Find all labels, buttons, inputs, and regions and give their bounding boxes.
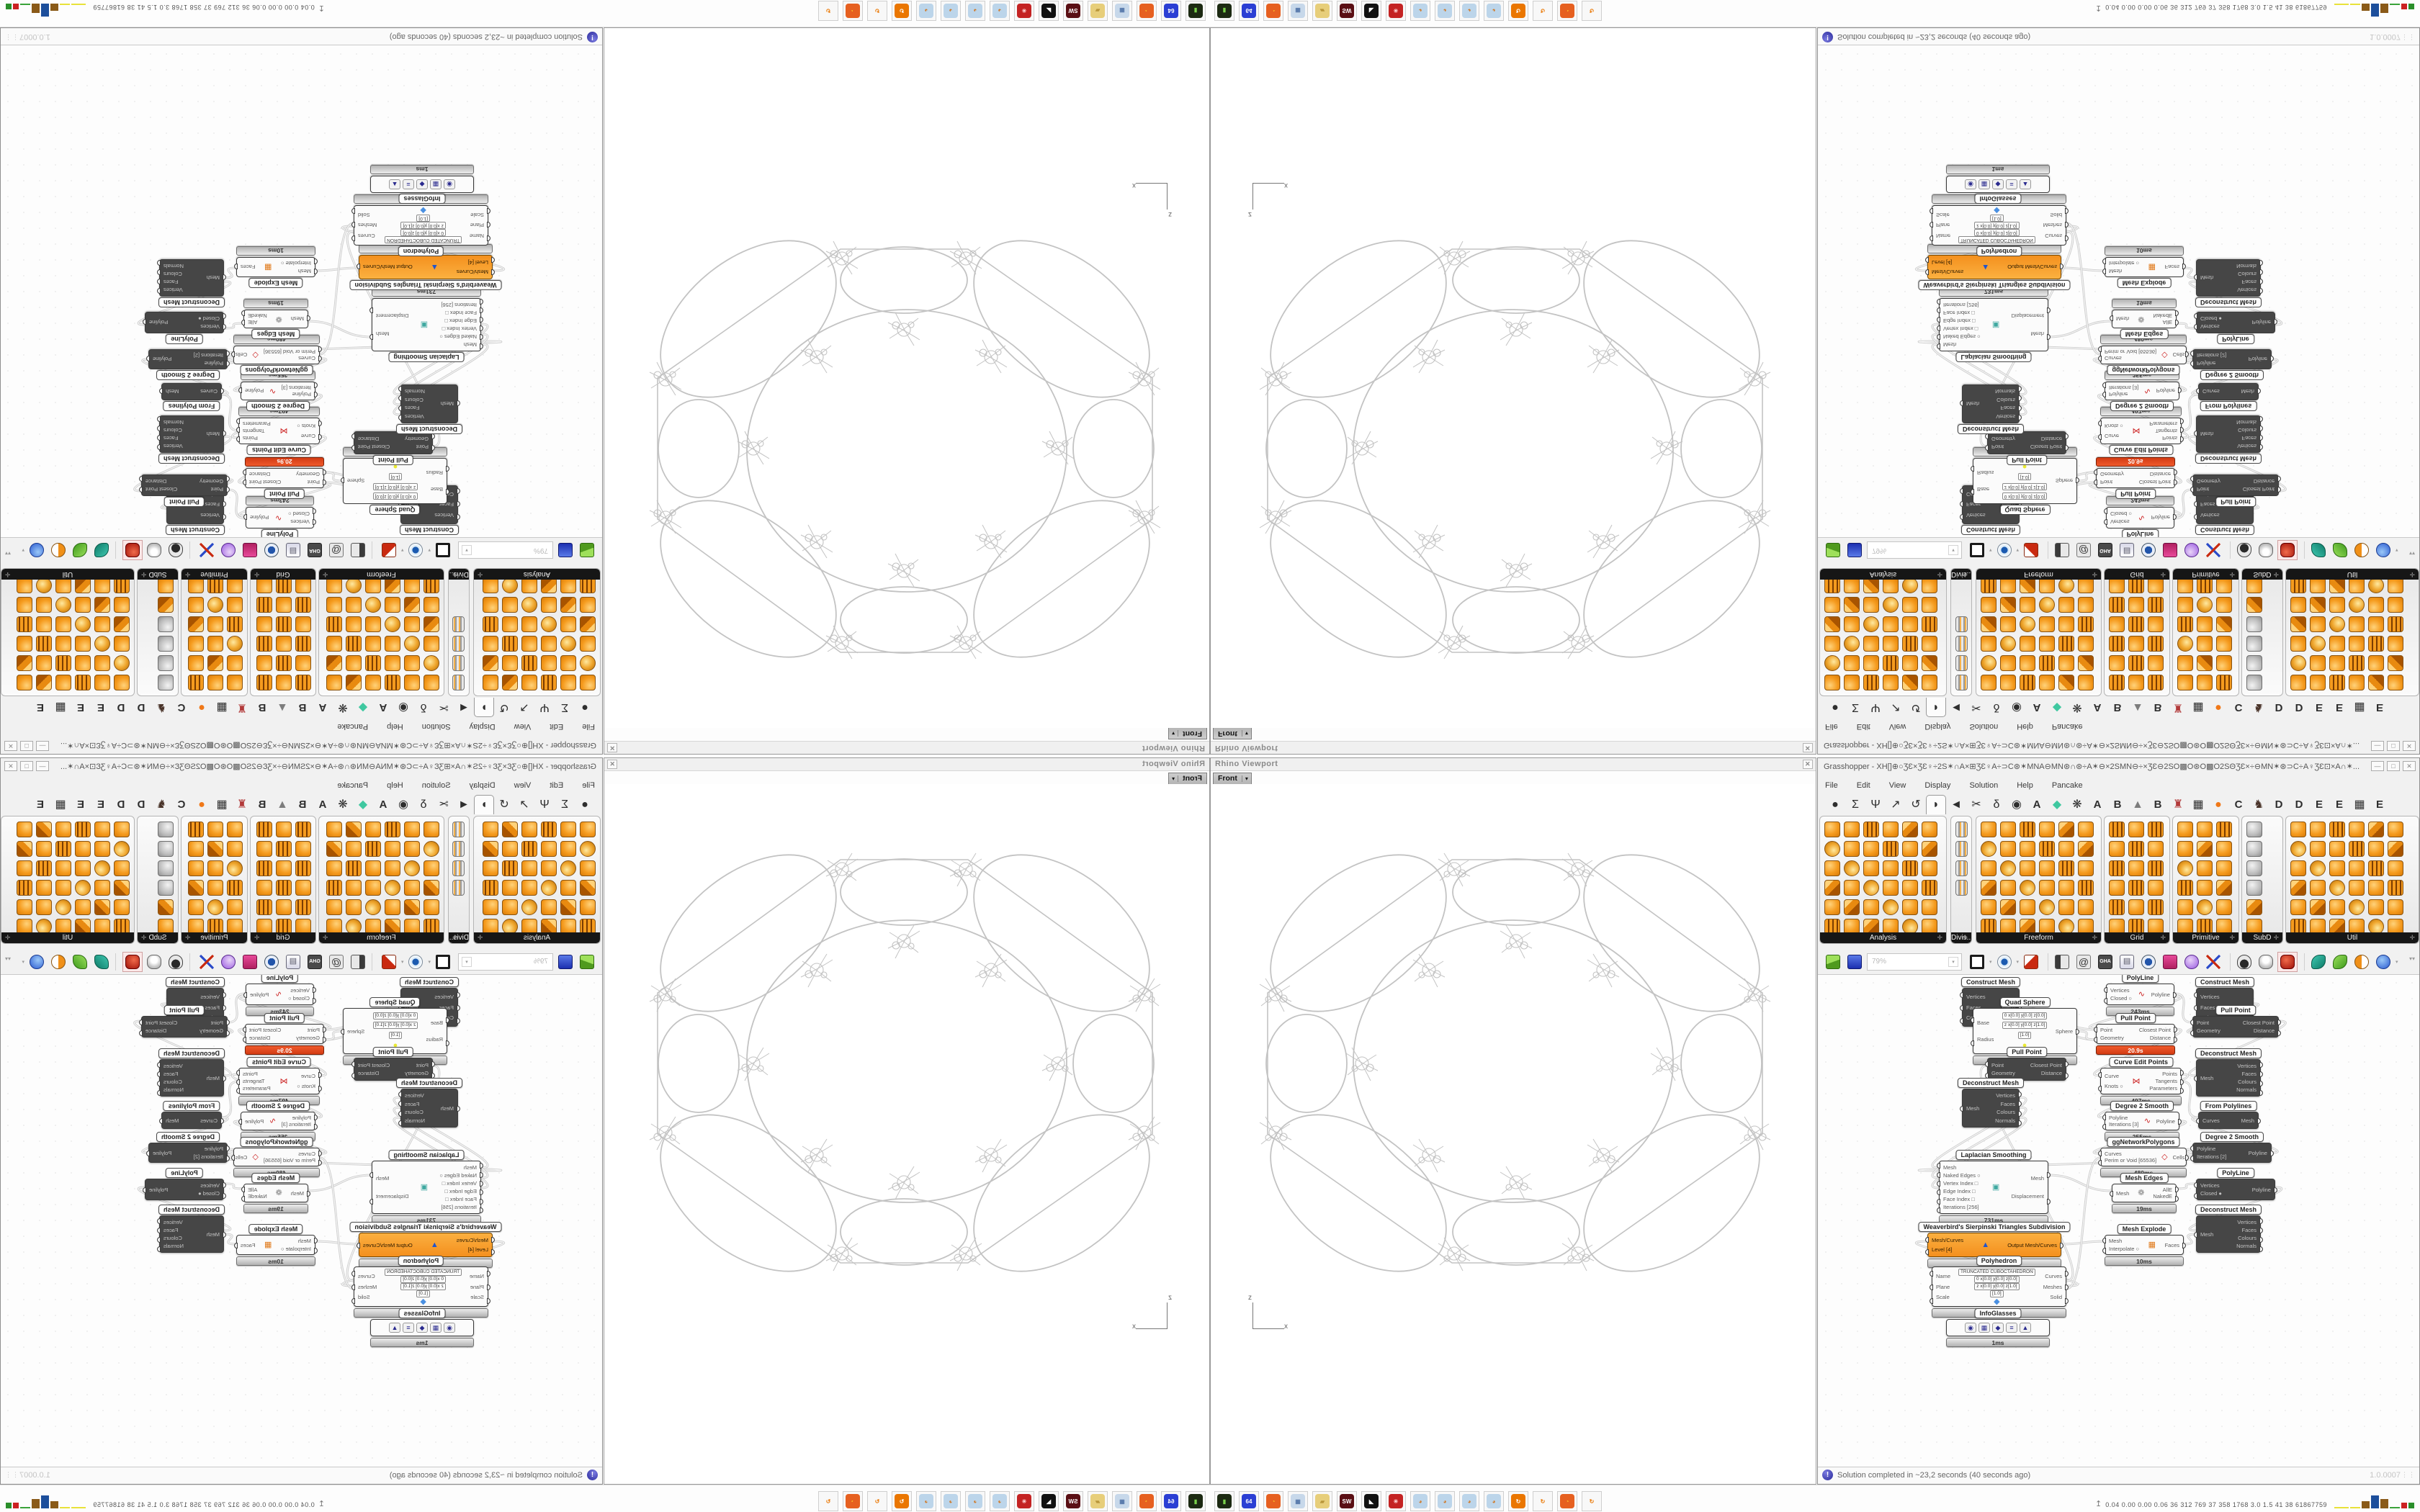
component-icon[interactable] <box>2388 617 2403 633</box>
input-port[interactable]: Naked Edges ○ <box>439 333 477 340</box>
input-port[interactable]: Point <box>1991 1062 2015 1068</box>
component-icon[interactable] <box>2128 675 2144 691</box>
category-tab-24[interactable]: E <box>2309 796 2329 814</box>
input-port[interactable]: Interpolate ○ <box>281 1246 311 1252</box>
output-jack[interactable] <box>341 1029 344 1035</box>
component-icon[interactable] <box>385 675 401 691</box>
component-icon[interactable] <box>189 841 205 857</box>
component-icon[interactable] <box>346 880 362 896</box>
infoglasses-button[interactable]: ▲ <box>2020 179 2031 189</box>
floppy-64-icon[interactable]: 64 <box>1239 1491 1259 1511</box>
output-port[interactable]: Normals <box>2236 263 2257 269</box>
output-port[interactable]: Cells <box>236 352 248 359</box>
output-port[interactable]: Normals <box>2236 1243 2257 1249</box>
sphere-orange-button[interactable] <box>49 953 68 971</box>
input-port[interactable]: Polyline <box>2197 360 2226 366</box>
input-port[interactable]: Mesh <box>291 1190 304 1197</box>
component-icon[interactable] <box>37 675 53 691</box>
component-icon[interactable] <box>2020 578 2035 594</box>
input-port[interactable]: Curves <box>2202 389 2220 395</box>
component-icon[interactable] <box>2078 675 2094 691</box>
input-jack[interactable] <box>1960 488 1963 494</box>
component-icon[interactable] <box>2310 880 2326 896</box>
component-icon[interactable] <box>2000 656 2016 672</box>
component-icon[interactable] <box>2388 656 2403 672</box>
input-port[interactable]: Curves <box>264 1151 315 1157</box>
output-port[interactable]: Solid <box>358 1294 377 1300</box>
component-icon[interactable] <box>208 899 224 915</box>
output-port[interactable]: Polyline <box>2249 1150 2267 1156</box>
output-port[interactable]: Closest Point <box>358 444 390 450</box>
leaf-teal-button[interactable] <box>92 541 111 559</box>
input-port[interactable]: Curves <box>200 389 218 395</box>
obscure-viewer-button[interactable] <box>2053 953 2071 971</box>
viewport-tab-front[interactable]: Front ▾ <box>1168 773 1207 785</box>
node-canvas[interactable]: Construct MeshVerticesFacesColoursMeshQu… <box>1818 45 2419 538</box>
value-chip[interactable]: TRUNCATED CUBOCTAHEDRON <box>385 1269 462 1276</box>
component-icon[interactable] <box>37 860 53 876</box>
component-icon[interactable] <box>277 860 292 876</box>
input-jack[interactable] <box>2102 383 2106 389</box>
input-jack[interactable] <box>2190 351 2194 356</box>
node-body[interactable]: PolylineIterations [3]∿Polyline <box>241 382 315 400</box>
category-tab-17[interactable]: ♜ <box>2168 796 2188 814</box>
category-tab-27[interactable]: E <box>30 796 50 814</box>
component-icon[interactable] <box>542 675 557 691</box>
node-body[interactable]: CurvesPerim or Void [65536]◇Cells <box>2100 1148 2187 1166</box>
component-icon[interactable] <box>2197 822 2213 837</box>
obscure-viewer-button[interactable] <box>2053 541 2071 559</box>
output-port[interactable]: Colours <box>1995 397 2015 403</box>
component-icon[interactable] <box>2128 880 2144 896</box>
input-port[interactable]: Mesh <box>207 431 220 438</box>
output-port[interactable]: Colours <box>2236 1079 2257 1085</box>
input-jack[interactable] <box>491 1249 495 1255</box>
component-icon[interactable] <box>366 636 382 652</box>
input-port[interactable]: Naked Edges ○ <box>439 1172 477 1179</box>
input-jack[interactable] <box>2102 1115 2106 1120</box>
value-chip[interactable]: z x[0.0] y[0.0] z[1.0] <box>1974 222 2019 229</box>
input-jack[interactable] <box>2194 1076 2197 1081</box>
node-body[interactable]: MeshInterpolate ○▦Faces <box>2105 257 2184 277</box>
output-jack[interactable] <box>157 426 161 432</box>
component-icon[interactable] <box>1844 598 1860 613</box>
component-icon[interactable] <box>2039 578 2055 594</box>
category-tab-16[interactable]: B <box>2148 699 2168 716</box>
save-file-button[interactable] <box>1845 953 1864 971</box>
maximize-button[interactable]: □ <box>2387 741 2400 751</box>
component-icon[interactable] <box>2329 675 2345 691</box>
component-icon[interactable] <box>2109 841 2125 857</box>
leaf-teal-button[interactable] <box>2309 541 2328 559</box>
component-icon[interactable] <box>2197 636 2213 652</box>
component-icon[interactable] <box>542 880 557 896</box>
category-tab-17[interactable]: ♜ <box>2168 699 2188 716</box>
component-icon[interactable] <box>424 617 440 633</box>
component-icon[interactable] <box>208 598 224 613</box>
menu-item-file[interactable]: File <box>1825 781 1838 790</box>
node-body[interactable]: MeshVerticesFacesColoursNormals <box>159 259 224 297</box>
component-icon[interactable] <box>483 598 499 613</box>
component-icon[interactable] <box>158 598 174 613</box>
output-port[interactable]: Normals <box>405 388 425 395</box>
viewport-close-icon[interactable]: ✕ <box>1803 760 1813 769</box>
component-icon[interactable] <box>56 598 72 613</box>
component-icon[interactable] <box>503 598 519 613</box>
category-tab-23[interactable]: D <box>2289 699 2309 716</box>
infoglasses-button[interactable]: ≡ <box>403 1323 414 1333</box>
output-port[interactable]: Normals <box>1995 1117 2015 1124</box>
remote-at-button[interactable]: @ <box>327 541 346 559</box>
input-jack[interactable] <box>2098 356 2102 362</box>
component-icon[interactable] <box>2000 822 2016 837</box>
component-icon[interactable] <box>2216 656 2232 672</box>
output-port[interactable]: Output Mesh/Curves <box>363 264 413 271</box>
palette-footer[interactable]: SubD✛ <box>2242 569 2282 580</box>
node-infoglasses[interactable]: InfoGlasses◉▦◆≡▲1ms <box>370 165 474 193</box>
component-icon[interactable] <box>453 841 465 857</box>
component-icon[interactable] <box>1883 675 1899 691</box>
output-port[interactable]: Faces <box>1995 405 2015 411</box>
output-jack[interactable] <box>351 222 355 228</box>
category-tab-14[interactable]: B <box>292 699 313 716</box>
component-icon[interactable] <box>327 860 343 876</box>
category-tab-2[interactable]: Ψ <box>1865 699 1886 716</box>
component-icon[interactable] <box>56 860 72 876</box>
input-jack[interactable] <box>2094 469 2097 475</box>
output-port[interactable]: Distance <box>249 471 281 477</box>
component-icon[interactable] <box>327 578 343 594</box>
component-icon[interactable] <box>2058 656 2074 672</box>
component-icon[interactable] <box>2310 899 2326 915</box>
component-icon[interactable] <box>2197 841 2213 857</box>
input-jack[interactable] <box>2094 1037 2097 1043</box>
value-chip[interactable]: TRUNCATED CUBOCTAHEDRON <box>385 236 462 243</box>
component-icon[interactable] <box>2197 617 2213 633</box>
input-jack[interactable] <box>1930 208 1933 214</box>
grasshopper-titlebar[interactable]: Grasshopper - XH[]⊕○ƷƐ×ƷƐ♀÷2S✶∩A×⊞ƷƐ♀A÷⊃… <box>1 758 602 775</box>
input-port[interactable]: Polyline <box>194 1146 223 1152</box>
component-icon[interactable] <box>208 617 224 633</box>
component-icon[interactable] <box>327 841 343 857</box>
node-polyline-top[interactable]: PolyLineVerticesClosed ○∿Polyline243ms <box>246 496 314 528</box>
component-icon[interactable] <box>2368 675 2384 691</box>
node-body[interactable]: MeshVerticesFacesColoursNormals <box>1962 1089 2020 1128</box>
output-port[interactable]: Faces <box>163 435 184 441</box>
node-ggnetwork-polygons[interactable]: ggNetworkPolygonsCurvesPerim or Void [65… <box>2100 335 2187 364</box>
infoglasses-button[interactable]: ≡ <box>2006 179 2017 189</box>
input-jack[interactable] <box>2194 501 2197 507</box>
node-deconstruct-mesh-r2[interactable]: Deconstruct MeshMeshVerticesFacesColours… <box>159 1215 224 1253</box>
input-jack[interactable] <box>226 1020 230 1025</box>
component-icon[interactable] <box>385 860 401 876</box>
node-degree-2-smooth-r[interactable]: Degree 2 SmoothPolylineIterations [2]Pol… <box>2192 349 2272 369</box>
component-icon[interactable] <box>2020 880 2035 896</box>
input-port[interactable]: Vertices <box>1966 994 1986 1000</box>
output-port[interactable]: Faces <box>163 279 184 285</box>
category-tab-6[interactable]: ◄ <box>1946 796 1966 814</box>
component-icon[interactable] <box>115 578 130 594</box>
input-jack[interactable] <box>318 1151 322 1156</box>
minimize-button[interactable]: — <box>36 741 49 751</box>
category-tab-13[interactable]: A <box>2087 699 2107 716</box>
menu-item-pancake[interactable]: Pancake <box>337 781 368 790</box>
component-icon[interactable] <box>2148 675 2164 691</box>
component-icon[interactable] <box>228 636 243 652</box>
input-port[interactable]: Vertices <box>2200 512 2220 518</box>
menu-item-display[interactable]: Display <box>1924 781 1950 790</box>
component-icon[interactable] <box>2078 656 2094 672</box>
output-jack[interactable] <box>157 261 161 266</box>
component-icon[interactable] <box>453 636 465 652</box>
component-icon[interactable] <box>1981 675 1996 691</box>
component-icon[interactable] <box>2020 656 2035 672</box>
node-body[interactable]: CurvesMesh <box>161 1112 222 1129</box>
component-icon[interactable] <box>2039 822 2055 837</box>
node-degree-2-smooth-l[interactable]: Degree 2 SmoothPolylineIterations [3]∿Po… <box>2105 371 2179 400</box>
gha-assembly-button[interactable]: GHA <box>2096 953 2115 971</box>
input-port[interactable]: Interpolate ○ <box>281 260 311 266</box>
component-icon[interactable] <box>56 675 72 691</box>
output-port[interactable]: Polyline <box>2249 356 2267 363</box>
category-tab-17[interactable]: ♜ <box>232 699 252 716</box>
input-jack[interactable] <box>2104 998 2107 1004</box>
output-port[interactable]: Solid <box>2043 1294 2062 1300</box>
component-icon[interactable] <box>228 880 243 896</box>
component-icon[interactable] <box>522 822 538 837</box>
infoglasses-button[interactable]: ≡ <box>403 179 414 189</box>
component-icon[interactable] <box>522 899 538 915</box>
input-jack[interactable] <box>1930 235 1933 241</box>
menu-item-help[interactable]: Help <box>387 722 403 731</box>
output-port[interactable]: Polyline <box>2252 320 2271 326</box>
input-port[interactable]: Vertices <box>198 1182 220 1189</box>
value-chip[interactable]: [1.0] <box>2018 473 2032 480</box>
input-port[interactable]: Geometry <box>1991 436 2015 442</box>
sketch-pen-button[interactable] <box>380 541 398 559</box>
toolbar-caret-icon[interactable]: ▾ <box>401 959 404 965</box>
input-jack[interactable] <box>1960 400 1963 406</box>
category-tab-15[interactable]: ▲ <box>272 796 292 814</box>
value-chip[interactable]: 0 x[0.0] y[0.0] z[0.0] <box>400 229 446 236</box>
component-icon[interactable] <box>2388 822 2403 837</box>
node-degree-2-smooth-l[interactable]: Degree 2 SmoothPolylineIterations [3]∿Po… <box>241 371 315 400</box>
input-jack[interactable] <box>2102 392 2106 398</box>
component-icon[interactable] <box>1863 675 1879 691</box>
component-icon[interactable] <box>208 860 224 876</box>
input-port[interactable]: Polyline <box>282 391 311 397</box>
component-icon[interactable] <box>581 656 596 672</box>
component-icon[interactable] <box>158 636 174 652</box>
node-infoglasses[interactable]: InfoGlasses◉▦◆≡▲1ms <box>1946 165 2050 193</box>
component-icon[interactable] <box>2368 617 2384 633</box>
category-tab-15[interactable]: ▲ <box>272 699 292 716</box>
pouch-white-button[interactable] <box>2257 953 2275 971</box>
component-icon[interactable] <box>2039 636 2055 652</box>
output-port[interactable]: Points <box>243 1071 271 1077</box>
component-icon[interactable] <box>2246 598 2262 613</box>
package-button[interactable] <box>2161 541 2179 559</box>
palette-expand-icon[interactable]: ✛ <box>452 932 458 943</box>
component-icon[interactable] <box>189 860 205 876</box>
component-icon[interactable] <box>189 617 205 633</box>
output-port[interactable]: Mesh <box>376 330 408 337</box>
input-jack[interactable] <box>2098 1160 2102 1166</box>
red-gear-icon[interactable]: ✳ <box>1386 1 1406 21</box>
output-jack[interactable] <box>398 1092 402 1097</box>
output-jack[interactable] <box>157 289 161 294</box>
infoglasses-button[interactable]: ◉ <box>444 179 455 189</box>
palette-footer[interactable]: Grid✛ <box>2105 569 2169 580</box>
output-port[interactable]: Tangents <box>2149 428 2177 434</box>
maximize-button[interactable]: □ <box>20 741 33 751</box>
component-icon[interactable] <box>208 656 224 672</box>
input-port[interactable]: Level [4] <box>457 259 488 266</box>
component-icon[interactable] <box>257 841 273 857</box>
component-icon[interactable] <box>2349 656 2365 672</box>
component-icon[interactable] <box>257 822 273 837</box>
component-icon[interactable] <box>2148 860 2164 876</box>
component-icon[interactable] <box>2020 860 2035 876</box>
viewport-tab-front[interactable]: Front ▾ <box>1213 728 1252 740</box>
input-jack[interactable] <box>2102 1124 2106 1130</box>
component-icon[interactable] <box>2109 578 2125 594</box>
input-port[interactable]: Iterations [3] <box>282 384 311 391</box>
component-icon[interactable] <box>115 675 130 691</box>
component-icon[interactable] <box>17 675 33 691</box>
zoom-extents-button[interactable] <box>1968 541 1986 559</box>
infoglasses-button[interactable]: ▲ <box>389 1323 400 1333</box>
input-jack[interactable] <box>226 1030 230 1036</box>
document-locate-button[interactable]: ▤ <box>284 541 302 559</box>
component-icon[interactable] <box>277 598 292 613</box>
input-jack[interactable] <box>1937 1163 1940 1169</box>
red-gear-icon[interactable]: ✳ <box>1014 1 1034 21</box>
palette-icon-2[interactable]: ◕ <box>965 1491 985 1511</box>
input-port[interactable]: Closed ● <box>2200 1190 2222 1197</box>
value-chip[interactable]: [1.0] <box>389 1032 403 1039</box>
component-icon[interactable] <box>56 578 72 594</box>
component-icon[interactable] <box>503 656 519 672</box>
component-icon[interactable] <box>1981 578 1996 594</box>
input-port[interactable]: Scale <box>1936 212 1950 218</box>
infoglasses-button[interactable]: ≡ <box>2006 1323 2017 1333</box>
category-tab-21[interactable]: ♞ <box>2249 796 2269 814</box>
component-icon[interactable] <box>208 880 224 896</box>
value-chip[interactable]: z x[0.0] y[0.0] z[1.0] <box>1974 1283 2019 1290</box>
component-icon[interactable] <box>503 636 519 652</box>
output-jack[interactable] <box>243 1037 246 1043</box>
input-port[interactable]: Point <box>405 1062 429 1068</box>
input-jack[interactable] <box>1937 1189 1940 1195</box>
menu-item-pancake[interactable]: Pancake <box>2052 722 2083 731</box>
component-icon[interactable] <box>2388 578 2403 594</box>
input-port[interactable]: Mesh/Curves <box>1932 1237 1963 1243</box>
component-icon[interactable] <box>2246 822 2262 837</box>
component-icon[interactable] <box>1883 841 1899 857</box>
component-icon[interactable] <box>208 841 224 857</box>
category-tab-2[interactable]: Ψ <box>534 796 555 814</box>
output-jack[interactable] <box>351 445 355 451</box>
output-port[interactable]: Colours <box>2236 427 2257 433</box>
output-port[interactable]: Distance <box>145 478 177 485</box>
input-port[interactable]: Vertices <box>200 512 220 518</box>
component-icon[interactable] <box>581 598 596 613</box>
node-polyline-r[interactable]: PolyLineVerticesClosed ●Polyline <box>145 312 224 333</box>
component-icon[interactable] <box>1863 598 1879 613</box>
component-icon[interactable] <box>296 841 312 857</box>
input-jack[interactable] <box>1937 325 1940 331</box>
output-jack[interactable] <box>2175 1187 2179 1192</box>
component-icon[interactable] <box>2388 675 2403 691</box>
node-body[interactable]: NamePlaneScaleTRUNCATED CUBOCTAHEDRON0 x… <box>1932 1266 2066 1307</box>
component-icon[interactable] <box>76 822 91 837</box>
menu-item-solution[interactable]: Solution <box>1969 722 1998 731</box>
palette-footer[interactable]: Divis...✛ <box>449 932 469 943</box>
node-deconstruct-mesh-r1[interactable]: Deconstruct MeshMeshVerticesFacesColours… <box>2196 415 2261 453</box>
input-jack[interactable] <box>1937 1207 1940 1213</box>
menu-item-view[interactable]: View <box>1889 781 1906 790</box>
component-icon[interactable] <box>277 617 292 633</box>
component-icon[interactable] <box>2388 899 2403 915</box>
output-port[interactable]: Meshes <box>2043 222 2062 229</box>
category-tab-5-selected[interactable]: ◗ <box>1926 795 1946 814</box>
input-port[interactable]: Vertices <box>200 994 220 1000</box>
component-icon[interactable] <box>405 880 421 896</box>
input-port[interactable]: Closed ● <box>2200 315 2222 322</box>
component-icon[interactable] <box>2148 841 2164 857</box>
node-body[interactable]: CurvesMesh <box>2198 383 2259 400</box>
component-icon[interactable] <box>95 860 111 876</box>
component-icon[interactable] <box>561 617 577 633</box>
component-icon[interactable] <box>17 880 33 896</box>
component-icon[interactable] <box>1863 617 1879 633</box>
input-port[interactable]: Closed ○ <box>288 510 310 517</box>
output-port[interactable]: Polyline <box>250 515 269 521</box>
component-icon[interactable] <box>189 636 205 652</box>
output-port[interactable]: NakedE <box>2153 1193 2172 1200</box>
input-jack[interactable] <box>1971 1017 1974 1023</box>
input-port[interactable]: Polyline <box>282 1115 311 1121</box>
solidworks-icon[interactable]: SW <box>1063 1 1083 21</box>
inkscape-cat-icon[interactable]: ◣ <box>1039 1 1059 21</box>
category-tab-20[interactable]: C <box>171 796 192 814</box>
component-icon[interactable] <box>581 899 596 915</box>
palette-icon-1[interactable]: ◕ <box>1410 1 1430 21</box>
menu-item-file[interactable]: File <box>582 781 595 790</box>
component-icon[interactable] <box>346 841 362 857</box>
node-degree-2-smooth-r[interactable]: Degree 2 SmoothPolylineIterations [2]Pol… <box>148 1143 228 1163</box>
node-body[interactable]: VerticesClosed ○∿Polyline <box>2106 984 2174 1005</box>
component-icon[interactable] <box>1883 617 1899 633</box>
menu-item-display[interactable]: Display <box>1924 722 1950 731</box>
zoom-combo-caret-icon[interactable]: ▾ <box>1948 545 1958 555</box>
input-port[interactable]: Geometry <box>296 1035 320 1041</box>
node-body[interactable]: PolylineIterations [2]Polyline <box>148 1143 228 1163</box>
output-jack[interactable] <box>351 1061 355 1067</box>
component-icon[interactable] <box>1824 841 1840 857</box>
component-icon[interactable] <box>522 636 538 652</box>
minimize-button[interactable]: — <box>2371 761 2384 771</box>
output-jack[interactable] <box>139 1020 143 1025</box>
output-port[interactable]: Closest Point <box>358 1062 390 1068</box>
component-icon[interactable] <box>366 578 382 594</box>
input-port[interactable]: Vertices <box>434 994 454 1000</box>
component-icon[interactable] <box>1863 822 1879 837</box>
component-icon[interactable] <box>37 617 53 633</box>
input-port[interactable]: Iterations [2] <box>194 352 223 359</box>
input-jack[interactable] <box>1971 1040 1974 1046</box>
